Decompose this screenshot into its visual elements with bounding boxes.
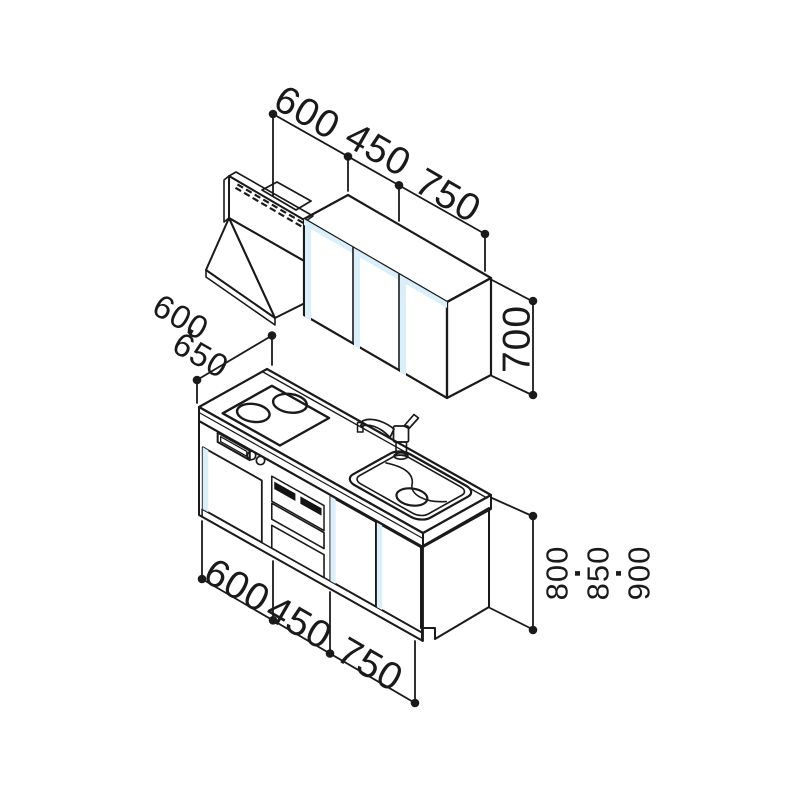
dim-counter-heights: 800 · 850 · 900: [490, 498, 657, 634]
dim-top-750: 750: [408, 160, 488, 231]
sink-door-1-edge-highlight: [330, 496, 335, 584]
range-hood: [206, 172, 313, 325]
wall-door2-edge-highlight: [354, 250, 360, 350]
oven-slot-left: [274, 482, 295, 501]
dim-bottom-750: 750: [330, 629, 410, 700]
oven-control-band: [272, 476, 324, 530]
diagram-canvas: 600 450 750 700 600 · 650: [0, 0, 800, 800]
hood-canopy-left-face: [206, 218, 275, 318]
sink-door-2-edge-highlight: [377, 522, 382, 610]
burner-back: [266, 390, 314, 417]
countertop-items: [223, 381, 477, 524]
hood-vent-band: [229, 176, 306, 262]
dim-bottom-450: 450: [259, 587, 339, 658]
dim-top-widths: 600 450 750: [267, 77, 490, 271]
oven-slot-right: [300, 496, 321, 515]
dim-700: 700: [496, 305, 539, 373]
wall-cabinet-top-highlight: [304, 219, 447, 308]
kitchen-dimension-diagram: 600 450 750 700 600 · 650: [0, 0, 800, 800]
wall-door1-edge-highlight: [305, 221, 311, 321]
sink-door-1: [330, 496, 376, 606]
hood-band-top-face: [229, 172, 313, 221]
dim-bottom-600: 600: [197, 550, 277, 621]
countertop-front-edge-line: [199, 413, 423, 539]
dim-top-450: 450: [338, 114, 418, 185]
left-door-edge-highlight: [203, 447, 209, 512]
left-door: [203, 447, 262, 542]
dim-height-900: 900: [622, 546, 657, 601]
sink-drain: [390, 485, 434, 509]
dim-top-600: 600: [267, 77, 347, 148]
dim-base-widths: 600 450 750: [197, 521, 420, 707]
hood-canopy-front-face: [229, 218, 306, 318]
faucet-body: [394, 426, 409, 442]
wall-cabinet-doors-front: [304, 219, 447, 398]
sink-door-2: [377, 522, 422, 632]
wall-cabinet-side-face: [447, 278, 491, 398]
hood-rear-duct: [262, 182, 311, 210]
faucet-spout: [361, 419, 395, 437]
dim-wall-cabinet-height: 700: [492, 280, 539, 399]
wall-door3-edge-highlight: [400, 276, 406, 376]
dim-counter-depth: 600 · 650: [147, 286, 277, 403]
